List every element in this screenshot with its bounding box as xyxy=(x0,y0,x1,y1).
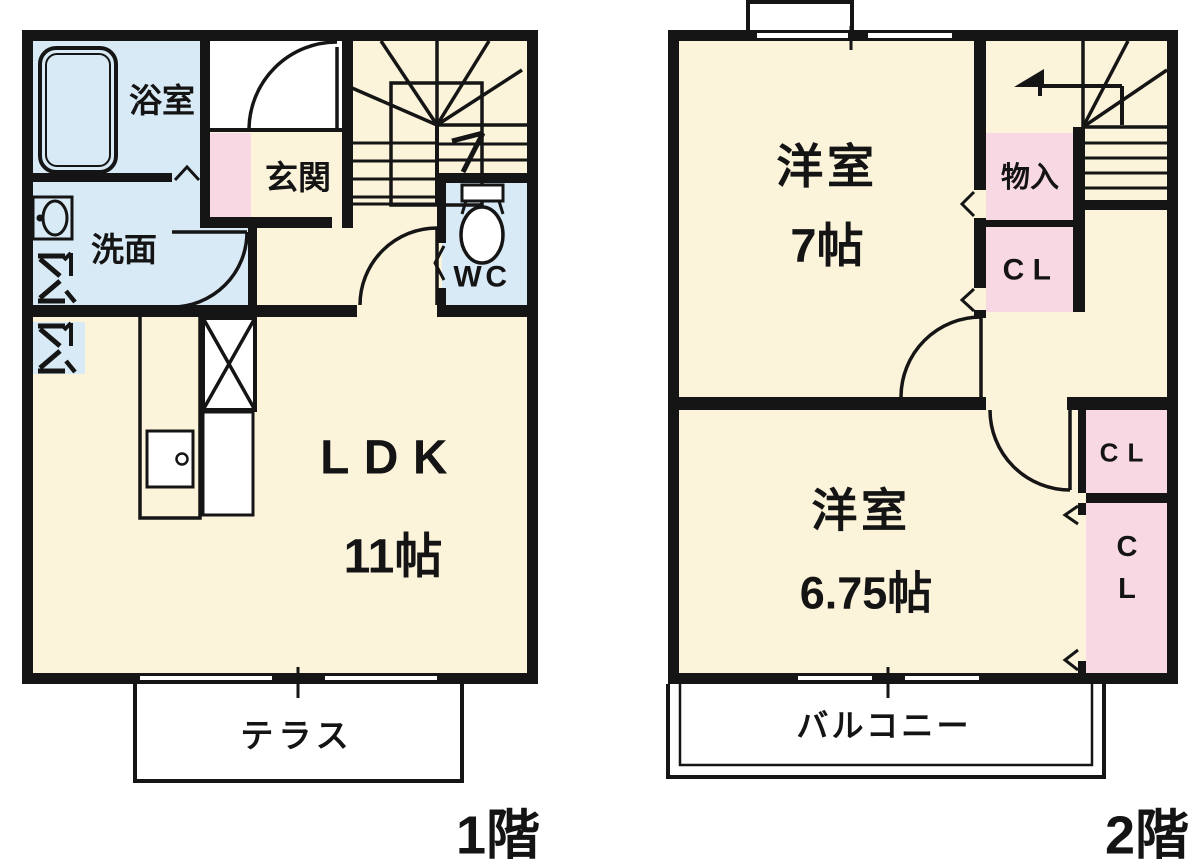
balcony-window-right xyxy=(905,676,979,680)
floorplan-canvas: 浴室 洗面 玄関 WC LDK 11帖 テラス 1階 洋室 7帖 物入 CL 洋… xyxy=(0,0,1200,868)
f2-closet-b-area xyxy=(1086,410,1167,493)
refrigerator-space-icon xyxy=(203,318,255,515)
terrace-window-right xyxy=(325,676,437,680)
f2-top-window-left xyxy=(757,33,848,38)
terrace-window-left xyxy=(140,676,272,680)
f2-top-window-right xyxy=(868,33,952,38)
f1-entry-hall-strip xyxy=(210,133,251,217)
f2-closet-c-area xyxy=(1086,503,1167,673)
floor2-plan xyxy=(668,2,1178,777)
f1-entry-porch xyxy=(210,41,342,131)
floor1-plan xyxy=(22,30,538,781)
balcony-window-left xyxy=(798,676,872,680)
bay-window-outline xyxy=(748,2,852,34)
f2-storage-area xyxy=(986,133,1073,220)
floorplan-drawing xyxy=(0,0,1200,868)
balcony-outline xyxy=(668,684,1104,777)
f2-closet-a-area xyxy=(986,227,1073,312)
toilet-icon xyxy=(461,185,503,263)
